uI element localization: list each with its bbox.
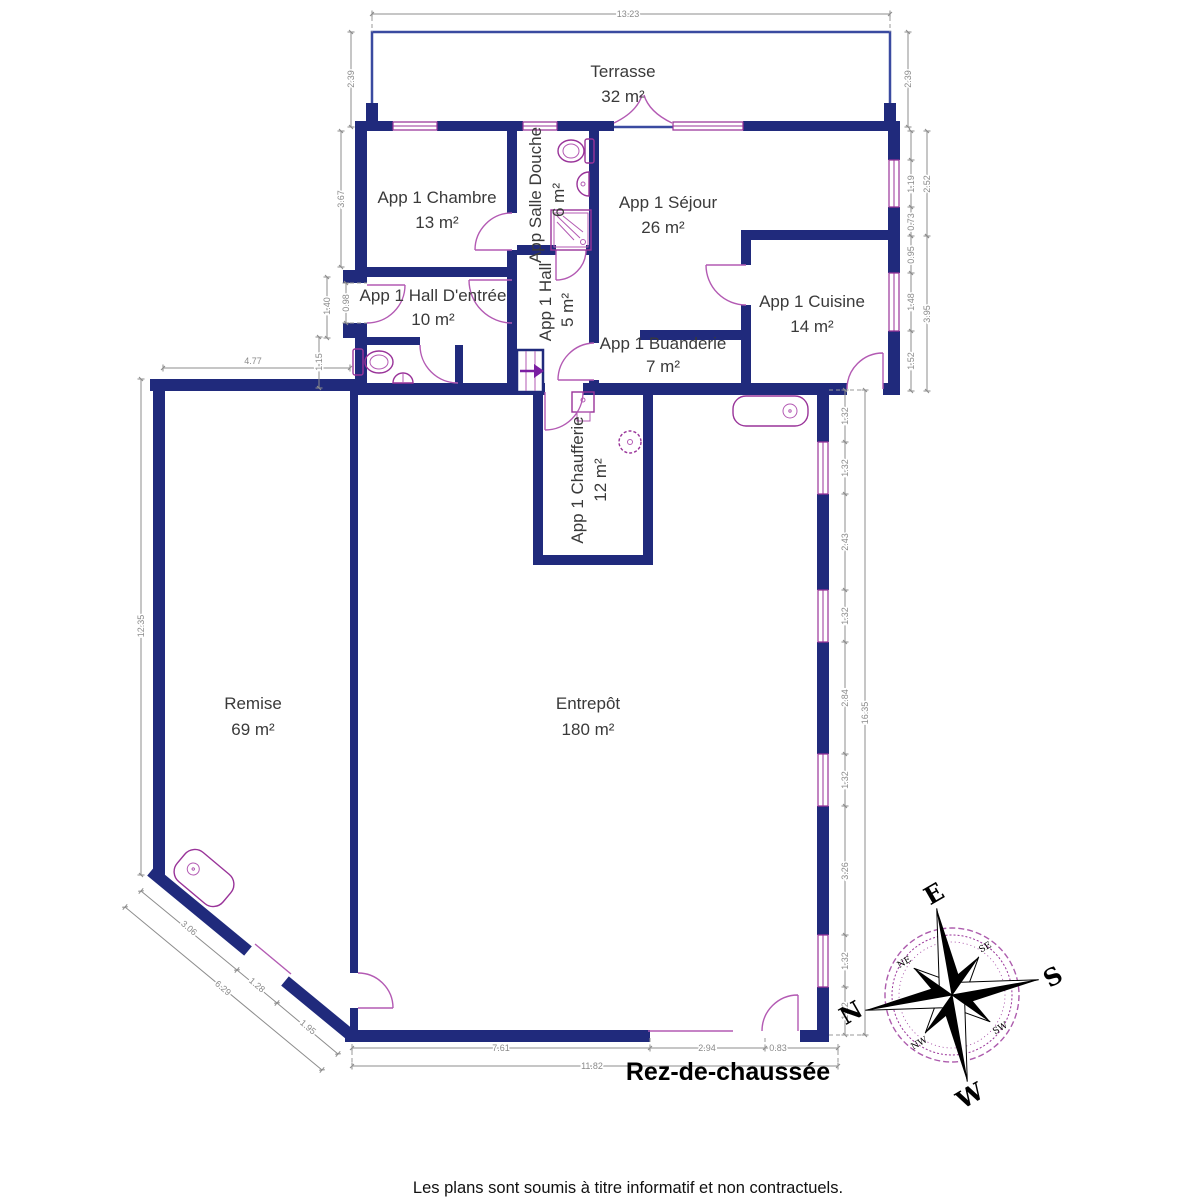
room-label-salle-douche: App Salle Douche	[526, 127, 545, 263]
dim-label: 2.84	[840, 689, 850, 707]
dim-label: 2.39	[346, 70, 356, 88]
dim-label: 0.95	[906, 246, 916, 264]
bathtub-icon	[733, 396, 808, 426]
dim-label: 2.43	[840, 533, 850, 551]
dim-label: 1.52	[906, 352, 916, 370]
door-chambre	[475, 213, 512, 250]
door-wc	[420, 345, 458, 383]
room-label-chambre: App 1 Chambre	[377, 188, 496, 207]
dim-label: 16.35	[860, 702, 870, 725]
opening-diagonal	[255, 944, 291, 974]
wc-sink-icon	[393, 373, 413, 383]
walls	[150, 103, 900, 1042]
door-cuisine-exterior	[847, 353, 883, 389]
room-area-cuisine: 14 m²	[790, 317, 834, 336]
compass-w: W	[950, 1076, 990, 1116]
compass-n: N	[834, 995, 867, 1031]
room-area-salle-douche: 6 m²	[549, 183, 568, 217]
dim-label: 3.95	[922, 305, 932, 323]
toilet-icon	[558, 139, 594, 163]
dim-label: 1.32	[840, 771, 850, 789]
dim-label: 1.48	[906, 293, 916, 311]
room-area-chaufferie: 12 m²	[591, 458, 610, 502]
dim-label: 4.77	[244, 356, 262, 366]
dim-label: 2.94	[698, 1043, 716, 1053]
dim-label: 6.29	[213, 979, 233, 998]
room-area-buanderie: 7 m²	[646, 357, 680, 376]
floor-plan-canvas: 13.23 2.39 2.39 3.67 1.40 0.98 1.15 4.77…	[0, 0, 1200, 1200]
door-entrepot-exterior	[762, 995, 798, 1031]
room-label-entrepot: Entrepôt	[556, 694, 621, 713]
dim-label: 2.39	[903, 70, 913, 88]
dim-label: 0.98	[341, 294, 351, 312]
disclaimer-text: Les plans sont soumis à titre informatif…	[413, 1179, 843, 1197]
sink-icon	[577, 172, 589, 196]
dim-label: 1.95	[298, 1018, 318, 1037]
door-salle-douche	[556, 250, 586, 280]
dim-label: 13.23	[617, 9, 640, 19]
compass-se: SE	[977, 940, 993, 955]
dim-label: 1.32	[840, 407, 850, 425]
dim-label: 11.82	[581, 1061, 603, 1071]
room-area-hall-entree: 10 m²	[411, 310, 455, 329]
room-area-hall: 5 m²	[558, 293, 577, 327]
door-cuisine	[706, 265, 746, 305]
dim-label: 0.73	[906, 213, 916, 231]
room-label-cuisine: App 1 Cuisine	[759, 292, 865, 311]
dim-label: 7.61	[492, 1043, 510, 1053]
room-area-terrasse: 32 m²	[601, 87, 645, 106]
room-area-chambre: 13 m²	[415, 213, 459, 232]
room-area-entrepot: 180 m²	[562, 720, 615, 739]
dim-label: 1.40	[322, 297, 332, 315]
room-label-terrasse: Terrasse	[590, 62, 655, 81]
compass-rose-icon: N E S W NE SE SW NW	[834, 876, 1068, 1115]
dim-label: 1.32	[840, 459, 850, 477]
room-label-buanderie: App 1 Buanderie	[600, 334, 727, 353]
stairs-icon	[517, 350, 544, 392]
dim-label: 2.52	[922, 175, 932, 193]
room-label-hall: App 1 Hall	[536, 263, 555, 341]
compass-sw: SW	[991, 1020, 1010, 1037]
room-area-remise: 69 m²	[231, 720, 275, 739]
compass-s: S	[1038, 960, 1068, 994]
dim-label: 1.19	[906, 175, 916, 193]
door-buanderie	[558, 343, 594, 380]
compass-ne: NE	[896, 955, 914, 971]
room-label-hall-entree: App 1 Hall D'entrée	[360, 286, 507, 305]
room-label-chaufferie: App 1 Chaufferie	[568, 416, 587, 543]
dim-label: 0.83	[769, 1043, 787, 1053]
dim-label: 1.32	[840, 607, 850, 625]
dim-label: 12.35	[136, 615, 146, 638]
diagonal-wall-lower	[285, 981, 353, 1037]
dim-label: 1.32	[840, 952, 850, 970]
dim-ext-top	[372, 17, 890, 32]
dim-label: 1.15	[314, 353, 324, 371]
dim-label: 3.06	[179, 919, 199, 938]
dim-label: 3.67	[336, 190, 346, 208]
door-remise-entrepot	[358, 973, 393, 1008]
plan-title: Rez-de-chaussée	[626, 1058, 830, 1086]
room-label-remise: Remise	[224, 694, 282, 713]
compass-e: E	[919, 876, 949, 910]
room-label-sejour: App 1 Séjour	[619, 193, 718, 212]
floor-plan-page: 13.23 2.39 2.39 3.67 1.40 0.98 1.15 4.77…	[0, 0, 1200, 1200]
dim-label: 3.26	[840, 862, 850, 880]
room-area-sejour: 26 m²	[641, 218, 685, 237]
